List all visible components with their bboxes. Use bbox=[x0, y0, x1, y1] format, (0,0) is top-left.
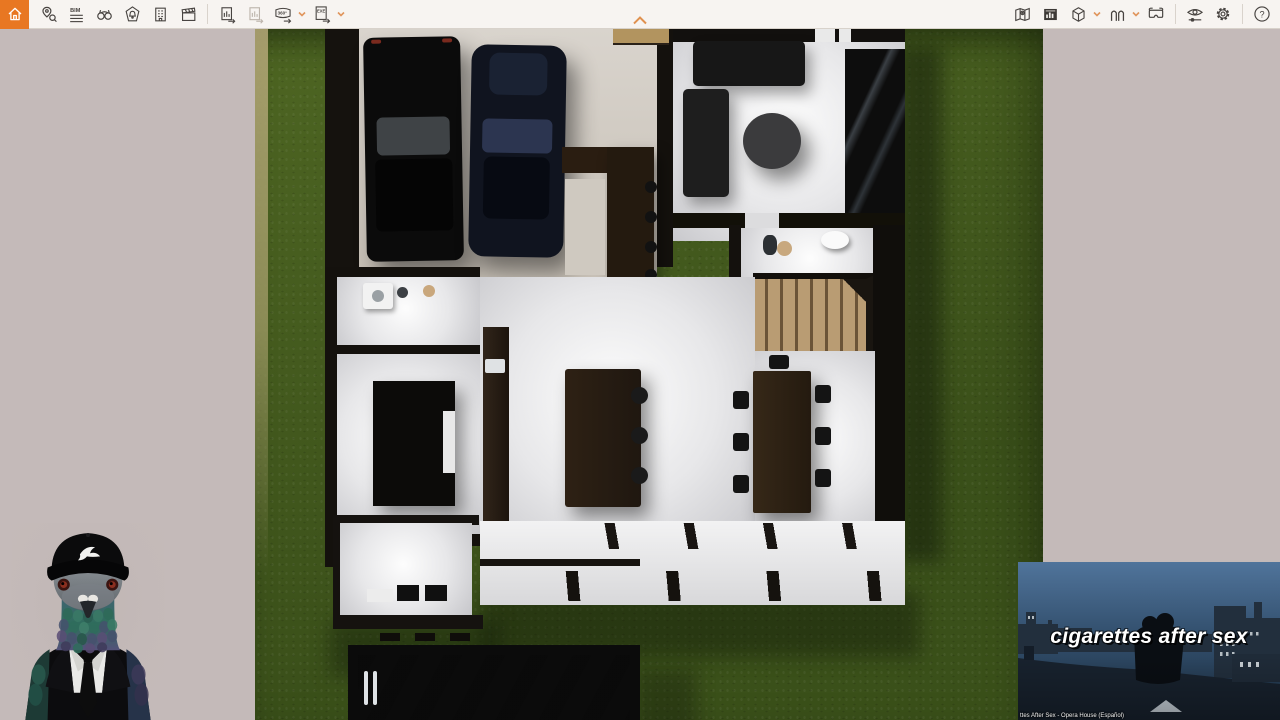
railing bbox=[415, 633, 435, 641]
bath-sink bbox=[777, 241, 792, 256]
bath-dark-fixture bbox=[763, 235, 777, 255]
view-management-button[interactable] bbox=[119, 1, 145, 27]
kitchen-sink bbox=[485, 359, 505, 373]
garage-living-wall bbox=[657, 29, 673, 267]
video-caption-text: ttes After Sex - Opera House (Español) bbox=[1020, 713, 1124, 719]
dining-chair bbox=[733, 475, 749, 493]
panorama-export-button[interactable]: 360° bbox=[270, 1, 296, 27]
svg-text:360°: 360° bbox=[278, 10, 288, 15]
utility-sink bbox=[423, 285, 435, 297]
stool bbox=[631, 427, 648, 444]
pigeon-tie bbox=[82, 651, 94, 662]
utility-fixture bbox=[397, 287, 408, 298]
car-sedan bbox=[468, 44, 567, 258]
toolbar-separator bbox=[1242, 4, 1243, 24]
views-button[interactable] bbox=[91, 1, 117, 27]
bed-desk-notch bbox=[443, 411, 455, 473]
site-context-button[interactable] bbox=[35, 1, 61, 27]
asset-library-button[interactable] bbox=[1037, 1, 1063, 27]
dining-chair bbox=[769, 355, 789, 369]
kitchen-island bbox=[565, 369, 641, 507]
render-viewport[interactable]: cigarettes after sex ttes After Sex - Op… bbox=[0, 29, 1280, 720]
stool bbox=[631, 467, 648, 484]
settings-button[interactable] bbox=[1210, 1, 1236, 27]
utility-top-wall bbox=[325, 267, 480, 277]
pigeon-overlay bbox=[10, 523, 166, 720]
vr-headset-icon bbox=[1146, 4, 1166, 24]
dining-chair bbox=[733, 391, 749, 409]
cube-icon bbox=[1069, 5, 1088, 24]
window bbox=[839, 29, 851, 42]
help-button[interactable]: ? bbox=[1249, 1, 1275, 27]
dining-table bbox=[753, 371, 811, 513]
stool bbox=[645, 211, 657, 223]
bim-mode-button[interactable]: BIM bbox=[63, 1, 89, 27]
doorway bbox=[745, 213, 779, 228]
railing bbox=[380, 633, 400, 641]
sofa bbox=[693, 41, 805, 86]
cabinet bbox=[425, 585, 447, 601]
vr-button[interactable] bbox=[1143, 1, 1169, 27]
svg-text:BIM: BIM bbox=[70, 8, 81, 14]
deck bbox=[480, 521, 905, 605]
visual-settings-eye-icon bbox=[1185, 4, 1205, 24]
dining-chair bbox=[815, 469, 831, 487]
garage-left-wall bbox=[325, 29, 359, 281]
batch-export-button bbox=[242, 1, 268, 27]
dining-chair bbox=[815, 385, 831, 403]
stairs bbox=[753, 273, 878, 351]
pool-ladder bbox=[373, 671, 377, 705]
video-editor-clapper-icon bbox=[179, 5, 198, 24]
window bbox=[815, 29, 835, 42]
pool-shadow bbox=[636, 669, 696, 720]
binoculars-icon bbox=[95, 5, 114, 24]
home-button[interactable] bbox=[0, 0, 29, 29]
walk-mode-dropdown-chevron[interactable] bbox=[1131, 1, 1141, 27]
utility-floor bbox=[337, 277, 480, 347]
stool bbox=[631, 387, 648, 404]
visual-settings-button[interactable] bbox=[1182, 1, 1208, 27]
walk-mode-button[interactable] bbox=[1104, 1, 1130, 27]
site-context-pin-icon bbox=[39, 5, 58, 24]
coffee-table bbox=[743, 113, 801, 169]
dining-chair bbox=[815, 427, 831, 445]
walk-mode-icon bbox=[1108, 5, 1127, 24]
batch-export-icon-disabled bbox=[246, 5, 265, 24]
toolbar-collapse-button[interactable] bbox=[626, 13, 654, 28]
utility-bottom-wall bbox=[325, 345, 480, 354]
toilet bbox=[821, 231, 849, 249]
svg-text:EXE: EXE bbox=[317, 8, 326, 13]
entry-bench-floor bbox=[565, 179, 605, 275]
asset-panel-chart-icon bbox=[1041, 5, 1060, 24]
chevron-up-icon bbox=[632, 16, 648, 25]
floorplan-render bbox=[325, 29, 905, 609]
pool-water-waves bbox=[358, 655, 630, 720]
exe-export-icon: EXE bbox=[312, 4, 332, 24]
exe-export-button[interactable]: EXE bbox=[309, 1, 335, 27]
pool bbox=[348, 645, 640, 720]
settings-gear-icon bbox=[1213, 4, 1233, 24]
bottom-room-floor bbox=[340, 523, 472, 615]
floor-mat bbox=[367, 589, 393, 602]
video-overlay[interactable]: cigarettes after sex ttes After Sex - Op… bbox=[1018, 562, 1280, 720]
sofa-chaise bbox=[683, 89, 729, 197]
svg-text:?: ? bbox=[1260, 9, 1265, 19]
panorama-360-export-icon: 360° bbox=[273, 4, 293, 24]
view-presets-button[interactable] bbox=[1065, 1, 1091, 27]
screenshot-export-button[interactable] bbox=[214, 1, 240, 27]
room-wall bbox=[333, 615, 483, 629]
cabinet bbox=[397, 585, 419, 601]
toolbar-right-group: ? bbox=[1008, 1, 1280, 27]
entry-mat bbox=[613, 29, 669, 45]
view-management-bell-icon bbox=[123, 5, 142, 24]
toolbar-separator bbox=[207, 4, 208, 24]
help-icon: ? bbox=[1252, 4, 1272, 24]
video-editor-button[interactable] bbox=[175, 1, 201, 27]
car-truck bbox=[363, 36, 464, 262]
stool bbox=[645, 241, 657, 253]
app-window: BIM bbox=[0, 0, 1280, 720]
toolbar-separator bbox=[1175, 4, 1176, 24]
railing bbox=[450, 633, 470, 641]
minimap-icon bbox=[1013, 5, 1032, 24]
minimap-button[interactable] bbox=[1009, 1, 1035, 27]
cube-dropdown-chevron[interactable] bbox=[1092, 1, 1102, 27]
dining-chair bbox=[733, 433, 749, 451]
pool-ladder bbox=[364, 671, 368, 705]
living-bottom-wall bbox=[673, 213, 905, 228]
side-path bbox=[255, 29, 268, 574]
home-icon bbox=[6, 5, 24, 23]
panorama-dropdown-chevron[interactable] bbox=[297, 1, 307, 27]
building-icon bbox=[151, 5, 170, 24]
bim-mode-icon: BIM bbox=[67, 5, 86, 24]
video-title-text: cigarettes after sex bbox=[1018, 625, 1280, 649]
screenshot-export-icon bbox=[218, 5, 237, 24]
stool bbox=[645, 181, 657, 193]
projects-button[interactable] bbox=[147, 1, 173, 27]
exe-dropdown-chevron[interactable] bbox=[336, 1, 346, 27]
washer bbox=[363, 283, 393, 309]
